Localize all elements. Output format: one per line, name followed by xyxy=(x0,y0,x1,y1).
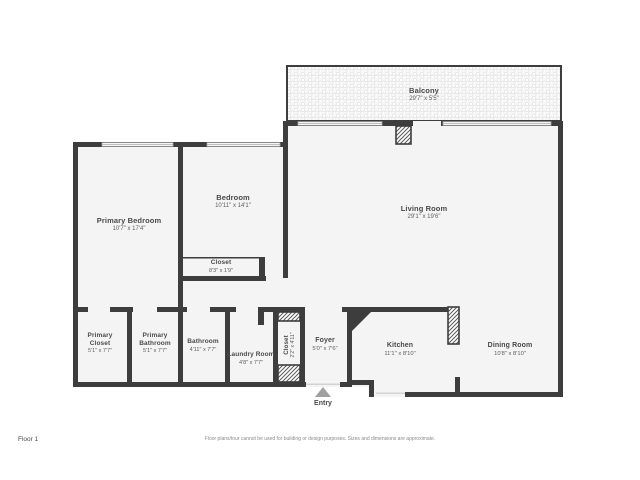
room-dims: 29'1" x 19'6" xyxy=(324,214,524,221)
room-label-primary-bedroom: Primary Bedroom 10'7" x 17'4" xyxy=(69,216,189,233)
room-dims: 29'7" x 5'5" xyxy=(324,96,524,103)
room-label-hall-closet: Closet 2'2" x 4'11" xyxy=(283,332,297,357)
room-name: Closet xyxy=(283,332,290,357)
room-dims: 10'8" x 8'10" xyxy=(430,351,590,358)
room-name: Primary Bathroom xyxy=(135,332,175,347)
entry-label: Entry xyxy=(293,400,353,407)
room-name: Balcony xyxy=(354,86,494,95)
room-label-bedroom: Bedroom 10'11" x 14'1" xyxy=(173,193,293,210)
room-name: Bathroom xyxy=(175,338,231,346)
room-dims: 8'3" x 1'9" xyxy=(151,268,291,275)
room-name: Kitchen xyxy=(355,342,445,350)
room-name: Primary Closet xyxy=(83,332,117,347)
room-label-living-room: Living Room 29'1" x 19'6" xyxy=(354,204,494,221)
floorplan-canvas xyxy=(0,0,640,480)
room-label-dining-room: Dining Room 10'8" x 8'10" xyxy=(460,342,560,358)
room-name: Foyer xyxy=(297,337,353,345)
room-name: Dining Room xyxy=(460,342,560,350)
room-dims: 10'11" x 14'1" xyxy=(143,203,323,210)
room-label-laundry-room: Laundry Room 4'8" x 7'7" xyxy=(227,351,275,366)
room-dims: 4'8" x 7'7" xyxy=(197,360,305,367)
room-label-bedroom-closet: Closet 8'3" x 1'9" xyxy=(181,259,261,274)
floor-plan-page: Balcony 29'7" x 5'5" Primary Bedroom 10'… xyxy=(0,0,640,480)
room-name: Living Room xyxy=(354,204,494,213)
room-name: Closet xyxy=(181,259,261,267)
room-name: Bedroom xyxy=(173,193,293,202)
room-name: Primary Bedroom xyxy=(69,216,189,225)
room-dims: 10'7" x 17'4" xyxy=(39,226,219,233)
room-label-balcony: Balcony 29'7" x 5'5" xyxy=(354,86,494,103)
floor-label: Floor 1 xyxy=(18,436,38,443)
disclaimer-text: Floor plans/tour cannot be used for buil… xyxy=(160,436,480,442)
room-label-bathroom: Bathroom 4'11" x 7'7" xyxy=(175,338,231,353)
room-dims: 2'2" x 4'11" xyxy=(290,332,297,357)
